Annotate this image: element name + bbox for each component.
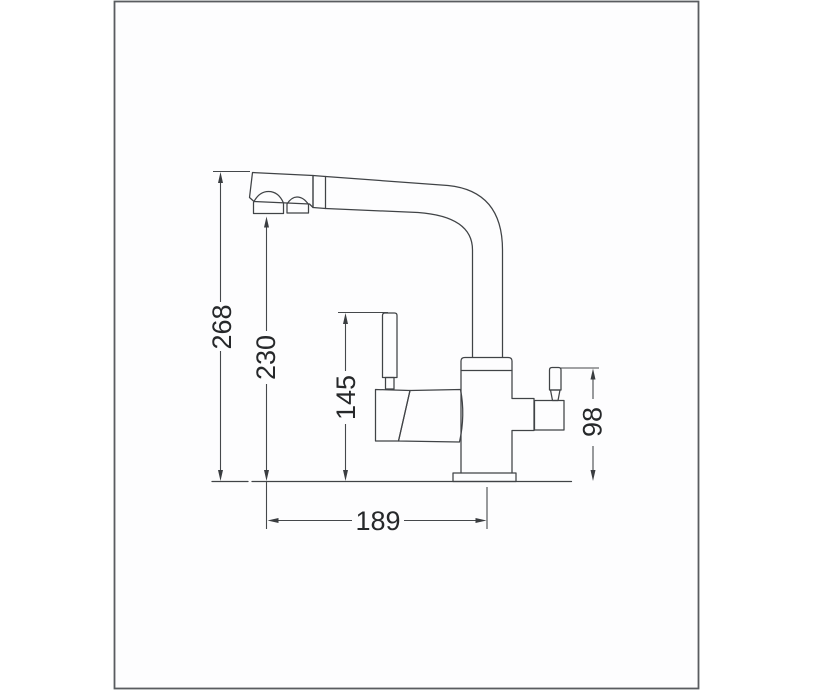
dim-145-label: 145 [331, 375, 361, 420]
dim-98-label: 98 [578, 407, 608, 437]
drawing-frame [115, 2, 699, 689]
dim-268-label: 268 [207, 304, 237, 349]
dim-189-label: 189 [355, 506, 400, 536]
faucet-dimension-drawing: 268 230 145 98 [0, 0, 816, 700]
drawing-svg: 268 230 145 98 [0, 0, 816, 700]
dim-230-label: 230 [251, 335, 281, 380]
